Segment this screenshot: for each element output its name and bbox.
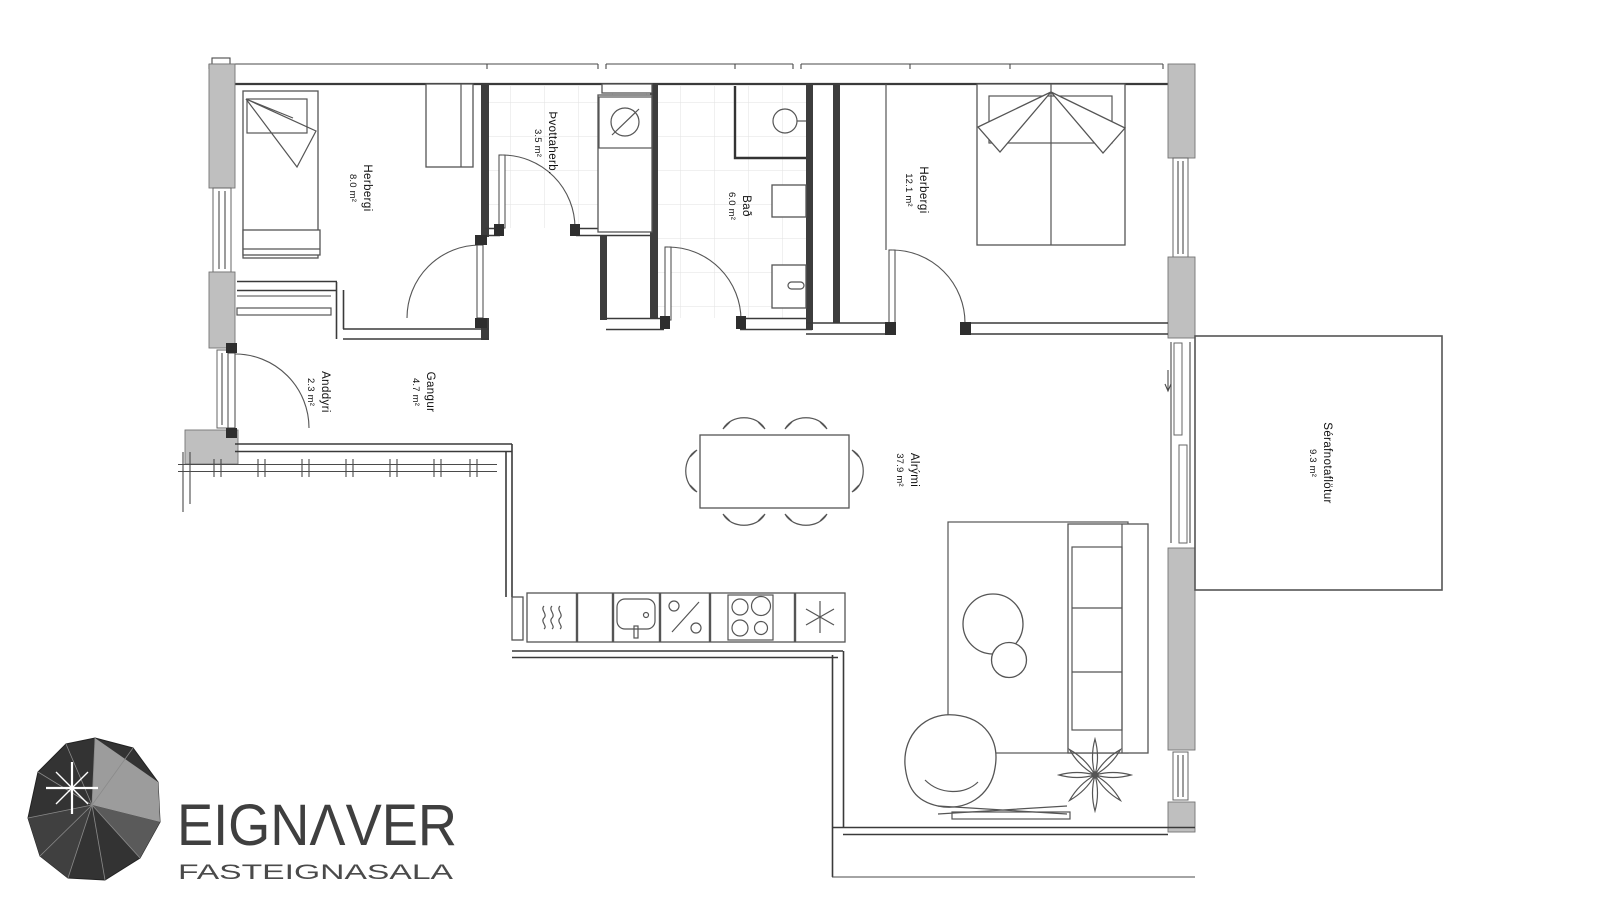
kitchen-end-panel: [512, 597, 523, 640]
window-right-bedroom2: [1173, 158, 1188, 257]
svg-text:Þvottaherb.: Þvottaherb.: [546, 111, 558, 174]
svg-text:Anddyri: Anddyri: [319, 371, 331, 413]
floorplan-drawing: Herbergi 8.0 m² Þvottaherb. 3.5 m² Bað 6…: [0, 0, 1600, 904]
svg-text:Alrými: Alrými: [908, 453, 920, 487]
armchair-icon: [905, 715, 996, 808]
svg-text:Herbergi: Herbergi: [361, 164, 373, 211]
toilet-icon: [772, 265, 806, 308]
wall-segment: [209, 64, 235, 188]
svg-text:6.0 m²: 6.0 m²: [726, 192, 737, 220]
wall-segment: [1168, 64, 1195, 158]
laundry-shelf: [602, 84, 652, 93]
floorplan-page: Herbergi 8.0 m² Þvottaherb. 3.5 m² Bað 6…: [0, 0, 1600, 904]
svg-text:Bað: Bað: [740, 195, 752, 217]
svg-text:Herbergi: Herbergi: [917, 166, 929, 213]
double-bed-icon: [977, 84, 1125, 245]
svg-text:Sérafnotaflötur: Sérafnotaflötur: [1321, 422, 1333, 503]
dining-table-icon: [700, 435, 849, 508]
svg-text:9.3 m²: 9.3 m²: [1307, 449, 1318, 477]
window-left-bedroom1: [213, 188, 231, 272]
wall-alcove-east: [600, 236, 607, 320]
wall-bath-east: [806, 84, 813, 330]
svg-text:3.5 m²: 3.5 m²: [532, 129, 543, 157]
toilet-cistern: [772, 185, 806, 217]
logo-tagline: FASTEIGNASALA: [178, 861, 453, 884]
desk-icon: [243, 230, 320, 255]
coffee-table-icon: [992, 643, 1027, 678]
wall-bedroom2-west: [833, 84, 840, 323]
kitchen-row: [512, 593, 845, 642]
laundry-furniture: [598, 84, 652, 232]
wall-bedroom1-east: [481, 84, 489, 237]
kitchen-counter: [527, 593, 845, 642]
logo-wordmark: EIGNΛVER: [177, 793, 457, 858]
svg-text:2.3 m²: 2.3 m²: [305, 378, 316, 406]
svg-text:12.1 m²: 12.1 m²: [903, 173, 914, 207]
svg-text:4.7 m²: 4.7 m²: [410, 378, 421, 406]
wall-segment: [1168, 548, 1195, 750]
svg-text:37.9 m²: 37.9 m²: [894, 453, 905, 487]
wall-segment: [1168, 257, 1195, 338]
wardrobe-icon: [426, 84, 473, 167]
wall-segment: [209, 272, 235, 348]
sofa-icon: [1068, 524, 1148, 753]
laundry-counter-icon: [598, 95, 652, 232]
svg-text:Gangur: Gangur: [424, 372, 436, 413]
svg-text:8.0 m²: 8.0 m²: [347, 174, 358, 202]
window-right-living: [1173, 752, 1188, 800]
